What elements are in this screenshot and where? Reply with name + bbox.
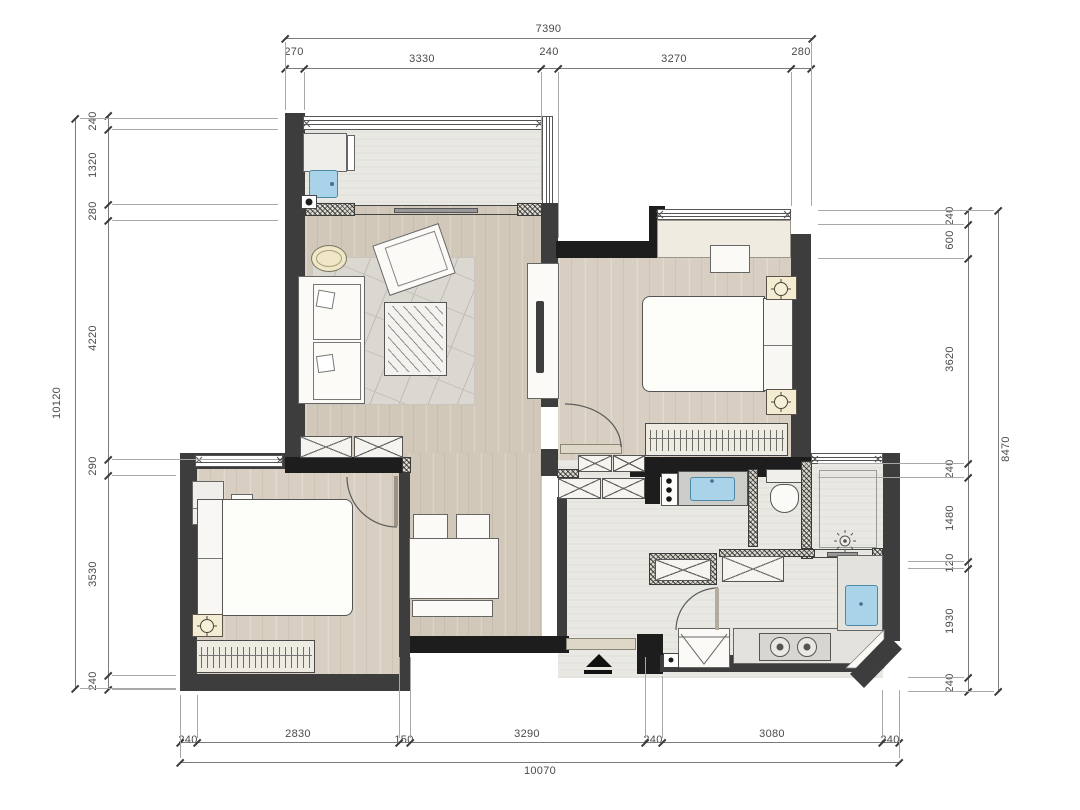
side-table: [311, 245, 347, 272]
dim-ext: [818, 210, 994, 211]
dim-line: [180, 742, 899, 743]
dim-line: [180, 762, 899, 763]
balcony-window: [303, 116, 543, 130]
dim-right-1: 600: [944, 210, 956, 270]
nightstand-2: [766, 389, 797, 415]
dim-ext: [304, 72, 305, 110]
shower-tray: [819, 470, 877, 548]
master-door: [560, 444, 622, 454]
nightstand-1: [766, 276, 797, 300]
balcony-door-jamb-right: [517, 203, 543, 216]
tv: [536, 301, 544, 373]
cooktop: [759, 633, 831, 661]
bedroom2-wardrobe: [196, 640, 315, 673]
dim-ext: [112, 204, 278, 205]
wall-master-east: [791, 234, 811, 477]
dim-ext: [197, 695, 198, 738]
dim-bottom-total: 10070: [240, 765, 840, 777]
bathroom-pier: [645, 467, 660, 504]
dim-right-total: 8470: [1000, 419, 1012, 479]
dim-top-3: 3270: [644, 53, 704, 65]
kitchen-cabinet-1: [655, 559, 711, 581]
dim-left-6: 240: [87, 651, 99, 711]
balcony-cabinet: [303, 133, 347, 172]
wall-east: [883, 453, 900, 641]
shoe-cabinet-1: [300, 436, 352, 458]
entry-door: [566, 638, 636, 650]
balcony-side-window: [542, 116, 553, 208]
dim-top-0: 270: [264, 46, 324, 58]
dim-ext: [112, 129, 278, 130]
window-seat-stool: [710, 245, 750, 273]
dim-top-total: 7390: [285, 23, 812, 35]
dim-left-5: 3530: [87, 544, 99, 604]
dim-ext: [112, 459, 278, 460]
hall-cabinet-4: [602, 478, 645, 499]
floor-plan-canvas: 7390 270 3330 240 3270 280 10120 240 132…: [0, 0, 1080, 810]
dim-ext: [908, 677, 964, 678]
dim-bottom-6: 240: [860, 734, 920, 746]
dim-ext: [791, 72, 792, 206]
hall-cabinet-3: [558, 478, 601, 499]
dim-ext: [112, 675, 176, 676]
dim-bottom-5: 3080: [742, 728, 802, 740]
dim-ext: [399, 657, 400, 738]
balcony-sliding-door: [355, 205, 517, 215]
dim-left-4: 290: [87, 436, 99, 496]
wall-bedroom2-south: [180, 674, 411, 691]
master-headboard: [763, 298, 793, 391]
bedroom2-headboard: [197, 499, 223, 616]
bedroom2-bed: [222, 499, 353, 616]
master-wardrobe: [645, 423, 788, 456]
bathroom-storage-strip: [661, 473, 678, 506]
hall-cabinet-2: [613, 455, 645, 472]
dim-line: [998, 210, 999, 691]
dim-ext: [112, 475, 176, 476]
coffee-table: [384, 302, 447, 376]
dim-right-6: 1930: [944, 591, 956, 651]
hall-cabinet-hatch: [557, 469, 579, 478]
dim-ext: [662, 676, 663, 738]
dim-ext: [899, 690, 900, 758]
dim-bottom-2: 150: [374, 734, 434, 746]
vanity-sink: [690, 477, 735, 501]
dim-ext: [818, 224, 964, 225]
dim-ext: [882, 690, 883, 738]
wall-living-master-lower: [541, 449, 558, 476]
sofa-pillow-1: [316, 290, 336, 310]
wall-living-south: [285, 457, 403, 473]
dim-ext: [645, 657, 646, 738]
headboard2-divider: [198, 558, 222, 559]
dim-ext: [180, 695, 181, 758]
dim-ext: [908, 568, 964, 569]
dim-ext: [558, 72, 559, 238]
dim-bottom-1: 2830: [268, 728, 328, 740]
dim-ext: [80, 118, 278, 119]
dim-bottom-4: 240: [623, 734, 683, 746]
dim-ext: [818, 258, 964, 259]
wall-master-north: [556, 241, 657, 258]
dim-line: [75, 118, 76, 688]
dim-ext: [285, 42, 286, 110]
bedroom2-door: [394, 476, 398, 526]
dim-bottom-3: 3290: [497, 728, 557, 740]
side-table-ring: [316, 250, 342, 267]
dim-ext: [410, 657, 411, 738]
wall-hall-foyer: [557, 497, 567, 639]
balcony-drain-box: [301, 195, 317, 209]
sofa-pillow-2: [316, 354, 335, 373]
master-bed: [642, 296, 765, 392]
kitchen-sink: [845, 585, 878, 626]
toilet-bowl: [770, 484, 799, 513]
dim-left-2: 280: [87, 181, 99, 241]
headboard-divider: [764, 345, 792, 346]
bedroom2-window: [195, 455, 283, 467]
dim-left-total: 10120: [51, 373, 63, 433]
dim-ext: [112, 689, 176, 690]
dim-top-1: 3330: [392, 53, 452, 65]
dim-right-2: 3620: [944, 329, 956, 389]
hall-cabinet-1: [578, 455, 612, 472]
dim-ext: [908, 561, 964, 562]
toilet-tank: [766, 469, 803, 483]
balcony-tall-unit: [347, 135, 355, 171]
wall-entry-south: [399, 636, 569, 653]
dim-line: [968, 210, 969, 691]
dim-ext: [541, 72, 542, 200]
dim-ext: [112, 220, 278, 221]
dim-bottom-0: 240: [158, 734, 218, 746]
armchair-seat: [385, 231, 448, 287]
partition-toilet: [748, 469, 758, 547]
dim-line: [285, 38, 812, 39]
dim-top-2: 240: [519, 46, 579, 58]
dim-ext: [818, 463, 964, 464]
bedroom2-nightstand: [192, 614, 223, 637]
dining-bench: [412, 600, 493, 617]
dim-right-5: 120: [944, 533, 956, 593]
dining-table: [409, 538, 499, 599]
gas-meter-box: [663, 653, 679, 668]
kitchen-cabinet-2: [722, 556, 784, 582]
dim-ext: [811, 42, 812, 206]
washing-machine: [309, 170, 338, 198]
dim-right-7: 240: [944, 653, 956, 713]
partition-shower: [801, 461, 812, 555]
shoe-cabinet-2: [354, 436, 403, 458]
wall-living-south-end: [402, 457, 411, 473]
dim-ext: [908, 691, 994, 692]
dim-line: [285, 68, 812, 69]
dim-top-4: 280: [771, 46, 831, 58]
dim-left-3: 4220: [87, 308, 99, 368]
refrigerator: [678, 628, 730, 668]
dim-ext: [818, 477, 964, 478]
master-bay-window: [657, 209, 791, 220]
